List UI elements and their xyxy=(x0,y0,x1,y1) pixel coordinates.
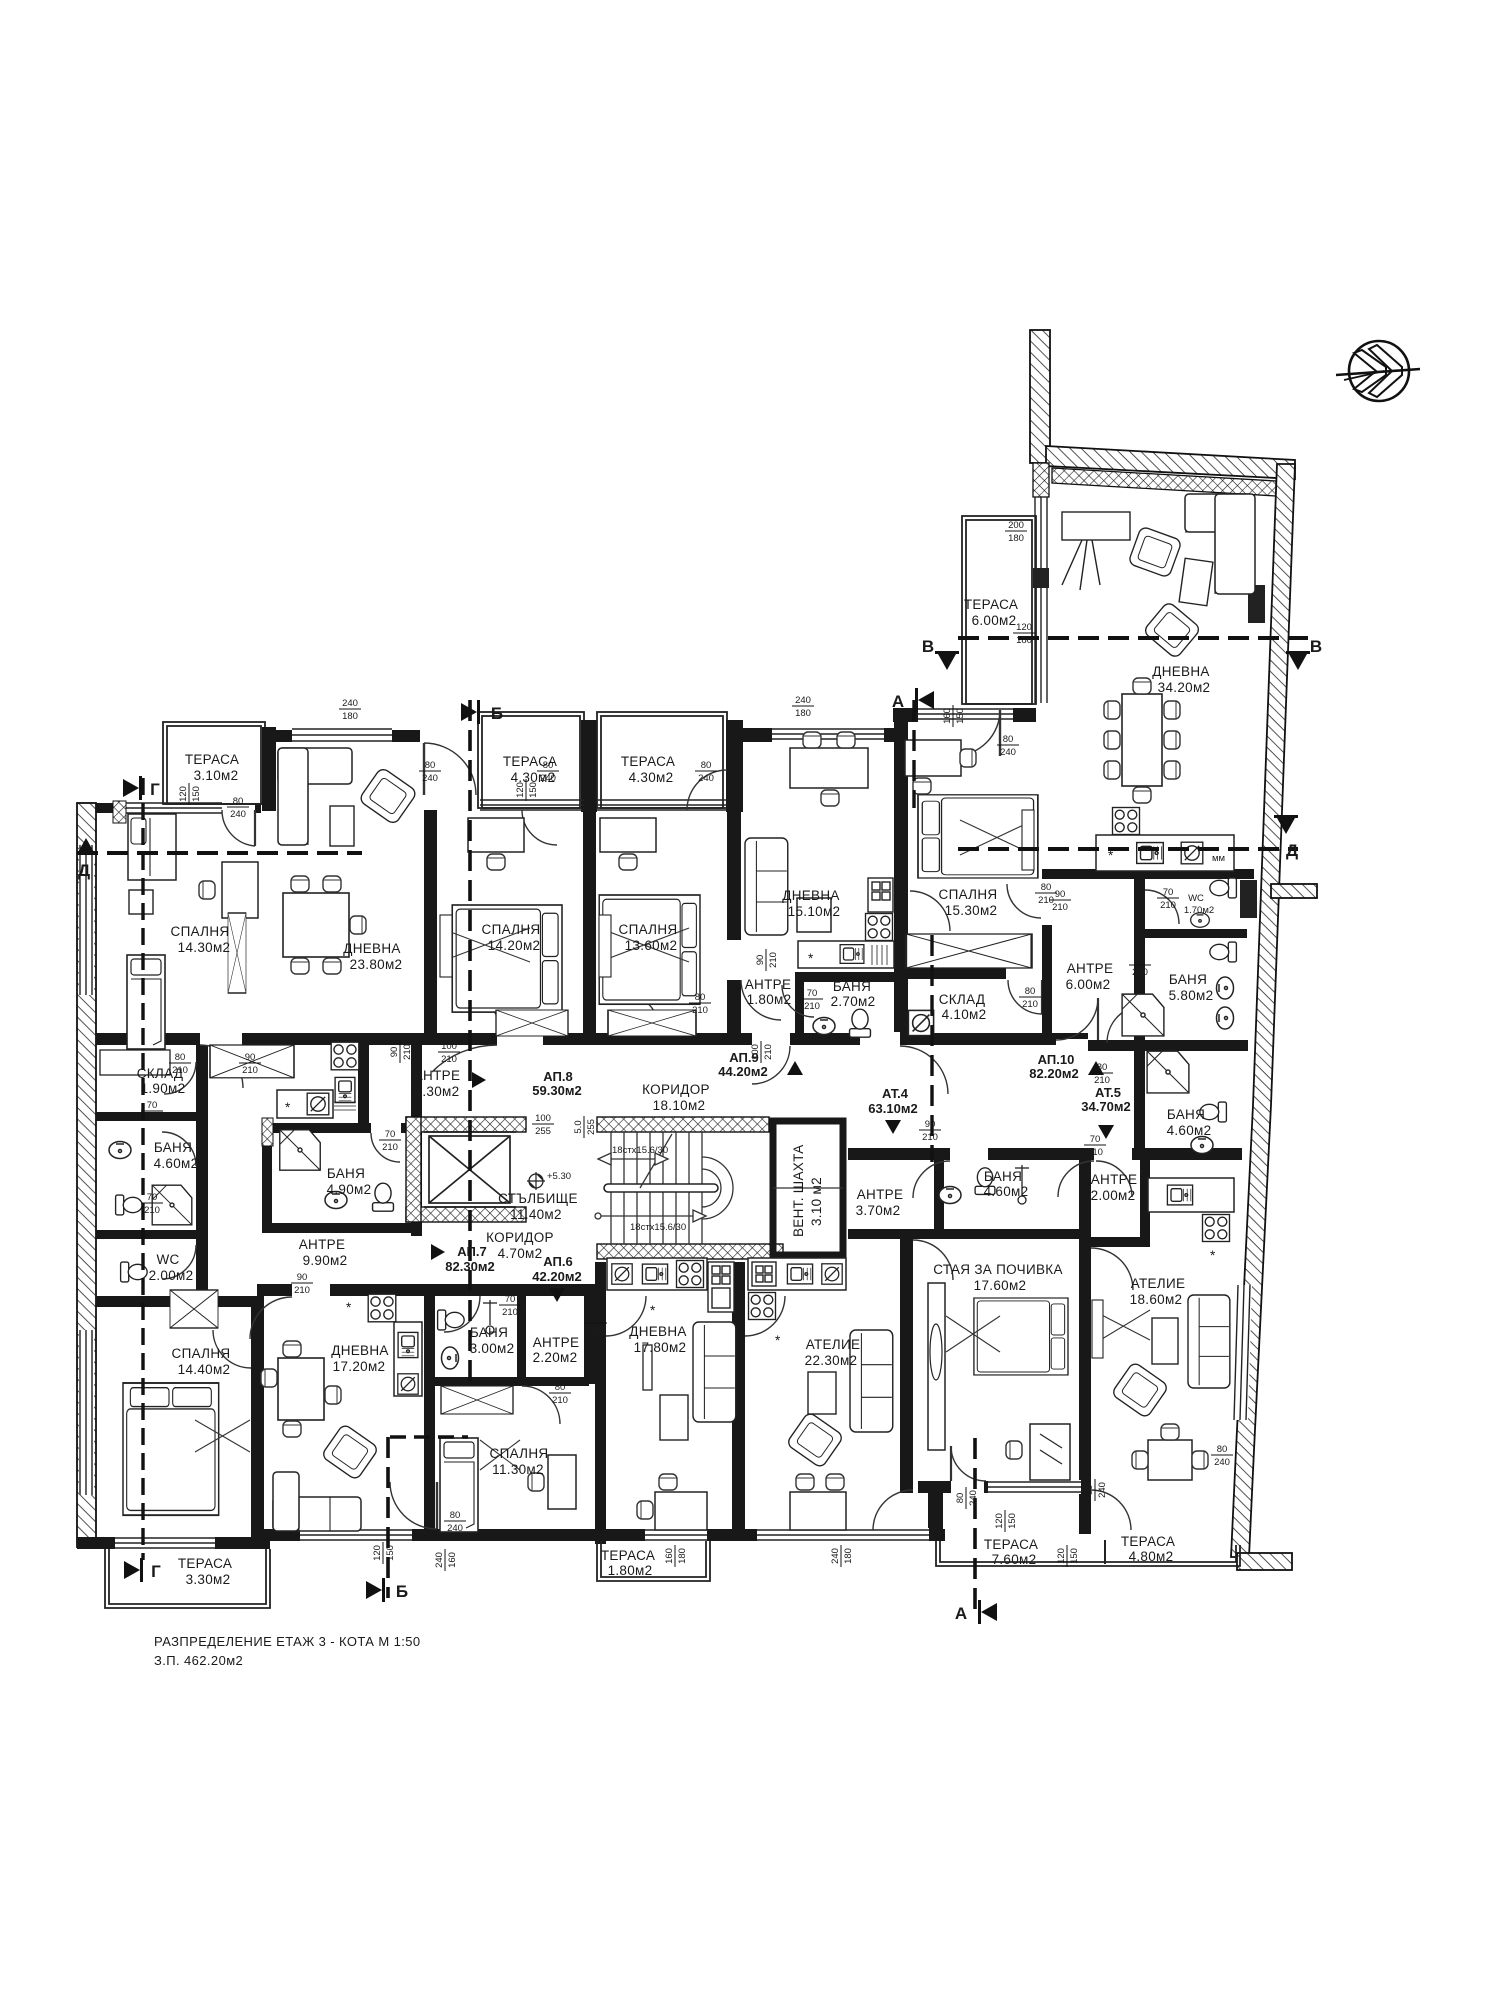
svg-text:120: 120 xyxy=(1016,622,1032,633)
svg-text:11.40м2: 11.40м2 xyxy=(510,1207,562,1222)
svg-text:70: 70 xyxy=(807,988,818,999)
svg-text:ДНЕВНА: ДНЕВНА xyxy=(782,888,839,903)
svg-text:240: 240 xyxy=(968,1490,979,1506)
svg-text:9.90м2: 9.90м2 xyxy=(303,1253,348,1268)
svg-text:З.П. 462.20м2: З.П. 462.20м2 xyxy=(154,1653,243,1668)
svg-text:6.00м2: 6.00м2 xyxy=(972,613,1017,628)
svg-text:180: 180 xyxy=(1016,635,1032,646)
svg-text:210: 210 xyxy=(502,1307,518,1318)
svg-text:160: 160 xyxy=(447,1552,458,1568)
svg-text:255: 255 xyxy=(586,1119,597,1135)
svg-text:СПАЛНЯ: СПАЛНЯ xyxy=(490,1446,549,1461)
svg-text:БАНЯ: БАНЯ xyxy=(984,1169,1022,1184)
svg-text:7.60м2: 7.60м2 xyxy=(992,1552,1037,1567)
svg-text:СКЛАД: СКЛАД xyxy=(939,992,986,1007)
svg-text:70: 70 xyxy=(147,1192,158,1203)
svg-text:180: 180 xyxy=(843,1548,854,1564)
svg-text:200: 200 xyxy=(1008,520,1024,531)
svg-text:80: 80 xyxy=(1003,734,1014,745)
svg-text:240: 240 xyxy=(422,773,438,784)
svg-text:150: 150 xyxy=(1007,1513,1018,1529)
svg-text:150: 150 xyxy=(191,786,202,802)
svg-text:1.70м2: 1.70м2 xyxy=(1184,905,1214,916)
svg-text:240: 240 xyxy=(698,773,714,784)
svg-text:240: 240 xyxy=(1000,747,1016,758)
svg-text:4.90м2: 4.90м2 xyxy=(327,1182,372,1197)
svg-text:ТЕРАСА: ТЕРАСА xyxy=(984,1537,1038,1552)
svg-text:Б: Б xyxy=(396,1582,408,1601)
svg-text:БАНЯ: БАНЯ xyxy=(327,1166,365,1181)
svg-text:80: 80 xyxy=(450,1510,461,1521)
svg-text:ДНЕВНА: ДНЕВНА xyxy=(331,1343,388,1358)
svg-text:ТЕРАСА: ТЕРАСА xyxy=(503,754,557,769)
svg-text:6.00м2: 6.00м2 xyxy=(1066,977,1111,992)
svg-text:210: 210 xyxy=(768,952,779,968)
svg-text:210: 210 xyxy=(804,1001,820,1012)
svg-text:АНТРЕ: АНТРЕ xyxy=(414,1068,461,1083)
svg-text:80: 80 xyxy=(555,1382,566,1393)
svg-text:мм: мм xyxy=(1212,853,1225,864)
svg-text:Г: Г xyxy=(151,1562,161,1581)
svg-text:3.10м2: 3.10м2 xyxy=(194,768,239,783)
svg-text:СТЪЛБИЩЕ: СТЪЛБИЩЕ xyxy=(498,1191,578,1206)
svg-text:210: 210 xyxy=(692,1005,708,1016)
svg-text:210: 210 xyxy=(1022,999,1038,1010)
svg-text:4.60м2: 4.60м2 xyxy=(154,1156,199,1171)
svg-text:ТЕРАСА: ТЕРАСА xyxy=(601,1548,655,1563)
svg-text:4.30м2: 4.30м2 xyxy=(629,770,674,785)
svg-text:АНТРЕ: АНТРЕ xyxy=(1091,1172,1138,1187)
svg-text:44.20м2: 44.20м2 xyxy=(718,1064,767,1079)
svg-text:АТЕЛИЕ: АТЕЛИЕ xyxy=(806,1337,861,1352)
svg-text:210: 210 xyxy=(382,1142,398,1153)
svg-text:3.10 м2: 3.10 м2 xyxy=(809,1177,824,1226)
svg-text:1.80м2: 1.80м2 xyxy=(608,1563,653,1578)
svg-text:240: 240 xyxy=(1214,1457,1230,1468)
svg-text:22.30м2: 22.30м2 xyxy=(805,1353,858,1368)
svg-text:18стх15.6/30: 18стх15.6/30 xyxy=(630,1222,686,1233)
svg-text:42.20м2: 42.20м2 xyxy=(532,1269,581,1284)
svg-text:70: 70 xyxy=(1135,954,1146,965)
svg-text:СПАЛНЯ: СПАЛНЯ xyxy=(939,887,998,902)
svg-text:240: 240 xyxy=(795,695,811,706)
svg-text:18стх15.6/30: 18стх15.6/30 xyxy=(612,1145,668,1156)
svg-text:210: 210 xyxy=(402,1044,413,1060)
svg-text:ДНЕВНА: ДНЕВНА xyxy=(343,941,400,956)
svg-text:70: 70 xyxy=(385,1129,396,1140)
svg-text:А: А xyxy=(892,692,904,711)
svg-text:240: 240 xyxy=(230,809,246,820)
svg-text:82.20м2: 82.20м2 xyxy=(1029,1066,1078,1081)
svg-text:18.60м2: 18.60м2 xyxy=(1130,1292,1183,1307)
svg-text:150: 150 xyxy=(385,1545,396,1561)
svg-text:ТЕРАСА: ТЕРАСА xyxy=(1121,1534,1175,1549)
svg-text:БАНЯ: БАНЯ xyxy=(470,1325,508,1340)
svg-text:5.80м2: 5.80м2 xyxy=(1169,988,1214,1003)
svg-text:БАНЯ: БАНЯ xyxy=(1169,972,1207,987)
svg-text:4.60м2: 4.60м2 xyxy=(984,1184,1029,1199)
svg-text:180: 180 xyxy=(795,708,811,719)
svg-text:БАНЯ: БАНЯ xyxy=(833,979,871,994)
svg-text:WC: WC xyxy=(156,1252,179,1267)
svg-text:100: 100 xyxy=(535,1113,551,1124)
svg-text:210: 210 xyxy=(1087,1147,1103,1158)
svg-text:3.00м2: 3.00м2 xyxy=(470,1341,515,1356)
svg-text:ДНЕВНА: ДНЕВНА xyxy=(1152,664,1209,679)
svg-text:120: 120 xyxy=(994,1513,1005,1529)
svg-text:90: 90 xyxy=(925,1119,936,1130)
svg-text:АНТРЕ: АНТРЕ xyxy=(857,1187,904,1202)
svg-text:15.10м2: 15.10м2 xyxy=(788,904,841,919)
svg-text:Д: Д xyxy=(78,861,90,880)
svg-text:240: 240 xyxy=(1097,1482,1108,1498)
svg-text:70: 70 xyxy=(1090,1134,1101,1145)
svg-text:2.00м2: 2.00м2 xyxy=(1091,1188,1136,1203)
svg-text:34.70м2: 34.70м2 xyxy=(1081,1099,1130,1114)
svg-text:1.80м2: 1.80м2 xyxy=(747,992,792,1007)
svg-text:34.20м2: 34.20м2 xyxy=(1158,680,1211,695)
svg-text:80: 80 xyxy=(425,760,436,771)
svg-text:210: 210 xyxy=(144,1113,160,1124)
svg-text:4.70м2: 4.70м2 xyxy=(498,1246,543,1261)
svg-text:Б: Б xyxy=(491,704,503,723)
svg-text:210: 210 xyxy=(294,1285,310,1296)
svg-text:240: 240 xyxy=(434,1552,445,1568)
svg-text:*: * xyxy=(650,1303,656,1318)
svg-text:+5.30: +5.30 xyxy=(547,1171,571,1182)
svg-text:*: * xyxy=(285,1100,291,1115)
svg-text:КОРИДОР: КОРИДОР xyxy=(642,1082,710,1097)
svg-text:17.20м2: 17.20м2 xyxy=(333,1359,386,1374)
svg-text:120: 120 xyxy=(372,1545,383,1561)
svg-text:180: 180 xyxy=(1008,533,1024,544)
svg-text:4.30м2: 4.30м2 xyxy=(511,770,556,785)
svg-text:80: 80 xyxy=(175,1052,186,1063)
svg-text:80: 80 xyxy=(701,760,712,771)
svg-text:150: 150 xyxy=(1069,1548,1080,1564)
svg-text:ТЕРАСА: ТЕРАСА xyxy=(964,597,1018,612)
svg-text:4.10м2: 4.10м2 xyxy=(942,1007,987,1022)
svg-text:240: 240 xyxy=(342,698,358,709)
svg-text:210: 210 xyxy=(144,1205,160,1216)
svg-text:23.80м2: 23.80м2 xyxy=(350,957,403,972)
svg-text:АТ.4: АТ.4 xyxy=(882,1086,909,1101)
svg-text:13.60м2: 13.60м2 xyxy=(625,938,678,953)
svg-text:80: 80 xyxy=(695,992,706,1003)
svg-text:4.30м2: 4.30м2 xyxy=(415,1084,460,1099)
svg-text:100: 100 xyxy=(441,1041,457,1052)
svg-text:2.20м2: 2.20м2 xyxy=(533,1350,578,1365)
svg-text:СКЛАД: СКЛАД xyxy=(137,1066,184,1081)
svg-text:Г: Г xyxy=(150,780,160,799)
svg-text:АП.8: АП.8 xyxy=(543,1069,572,1084)
svg-text:210: 210 xyxy=(1052,902,1068,913)
svg-text:59.30м2: 59.30м2 xyxy=(532,1083,581,1098)
svg-text:17.60м2: 17.60м2 xyxy=(974,1278,1027,1293)
svg-text:70: 70 xyxy=(147,1100,158,1111)
svg-text:4.80м2: 4.80м2 xyxy=(1129,1549,1174,1564)
svg-text:240: 240 xyxy=(447,1523,463,1534)
svg-text:90: 90 xyxy=(1055,889,1066,900)
svg-text:*: * xyxy=(775,1333,781,1348)
svg-text:80: 80 xyxy=(1217,1444,1228,1455)
svg-text:90: 90 xyxy=(245,1052,256,1063)
svg-text:150: 150 xyxy=(955,708,966,724)
svg-text:180: 180 xyxy=(342,711,358,722)
svg-text:WC: WC xyxy=(1188,893,1204,904)
svg-text:210: 210 xyxy=(922,1132,938,1143)
svg-text:90: 90 xyxy=(297,1272,308,1283)
svg-text:БАНЯ: БАНЯ xyxy=(154,1140,192,1155)
svg-text:80: 80 xyxy=(233,796,244,807)
svg-text:3.70м2: 3.70м2 xyxy=(856,1203,901,1218)
svg-text:90: 90 xyxy=(591,1312,602,1323)
svg-text:*: * xyxy=(346,1300,352,1315)
svg-text:180: 180 xyxy=(677,1548,688,1564)
svg-text:80: 80 xyxy=(1041,882,1052,893)
svg-text:5.0: 5.0 xyxy=(573,1120,584,1133)
svg-text:80: 80 xyxy=(955,1493,966,1504)
svg-text:1.90м2: 1.90м2 xyxy=(141,1081,186,1096)
svg-text:АНТРЕ: АНТРЕ xyxy=(745,977,792,992)
svg-text:210: 210 xyxy=(1132,967,1148,978)
svg-text:ТЕРАСА: ТЕРАСА xyxy=(621,754,675,769)
svg-text:15.30м2: 15.30м2 xyxy=(945,903,998,918)
svg-text:17.80м2: 17.80м2 xyxy=(634,1340,687,1355)
svg-text:160: 160 xyxy=(942,708,953,724)
svg-text:90: 90 xyxy=(389,1047,400,1058)
svg-text:КОРИДОР: КОРИДОР xyxy=(486,1230,554,1245)
svg-text:В: В xyxy=(1310,637,1322,656)
svg-text:90: 90 xyxy=(755,955,766,966)
svg-text:70: 70 xyxy=(505,1294,516,1305)
svg-text:Д: Д xyxy=(1286,841,1298,860)
svg-text:ДНЕВНА: ДНЕВНА xyxy=(629,1324,686,1339)
svg-text:СПАЛНЯ: СПАЛНЯ xyxy=(619,922,678,937)
svg-text:АНТРЕ: АНТРЕ xyxy=(533,1335,580,1350)
svg-text:2.00м2: 2.00м2 xyxy=(149,1268,194,1283)
svg-text:120: 120 xyxy=(1056,1548,1067,1564)
svg-text:*: * xyxy=(1210,1248,1216,1263)
svg-text:210: 210 xyxy=(763,1044,774,1060)
svg-text:3.30м2: 3.30м2 xyxy=(186,1572,231,1587)
svg-text:255: 255 xyxy=(535,1126,551,1137)
svg-text:4.60м2: 4.60м2 xyxy=(1167,1123,1212,1138)
svg-text:АП.10: АП.10 xyxy=(1038,1052,1075,1067)
svg-text:*: * xyxy=(808,951,814,966)
svg-text:210: 210 xyxy=(1160,900,1176,911)
svg-text:ТЕРАСА: ТЕРАСА xyxy=(185,752,239,767)
svg-text:ВЕНТ. ШАХТА: ВЕНТ. ШАХТА xyxy=(791,1145,806,1238)
svg-text:АП.9: АП.9 xyxy=(729,1050,758,1065)
svg-text:120: 120 xyxy=(178,786,189,802)
svg-text:14.30м2: 14.30м2 xyxy=(178,940,231,955)
svg-text:18.10м2: 18.10м2 xyxy=(653,1098,706,1113)
svg-text:АТ.5: АТ.5 xyxy=(1095,1085,1121,1100)
svg-text:АНТРЕ: АНТРЕ xyxy=(1067,961,1114,976)
svg-text:240: 240 xyxy=(830,1548,841,1564)
svg-text:АНТРЕ: АНТРЕ xyxy=(299,1237,346,1252)
svg-text:210: 210 xyxy=(242,1065,258,1076)
svg-text:11.30м2: 11.30м2 xyxy=(492,1462,544,1477)
svg-text:210: 210 xyxy=(552,1395,568,1406)
svg-text:СПАЛНЯ: СПАЛНЯ xyxy=(171,924,230,939)
svg-text:СПАЛНЯ: СПАЛНЯ xyxy=(172,1346,231,1361)
svg-text:ТЕРАСА: ТЕРАСА xyxy=(178,1556,232,1571)
svg-text:210: 210 xyxy=(441,1054,457,1065)
svg-text:А: А xyxy=(955,1604,967,1623)
svg-text:70: 70 xyxy=(1163,887,1174,898)
svg-text:82.30м2: 82.30м2 xyxy=(445,1259,494,1274)
svg-text:160: 160 xyxy=(664,1548,675,1564)
svg-text:РАЗПРЕДЕЛЕНИЕ ЕТАЖ 3 - КОТА: РАЗПРЕДЕЛЕНИЕ ЕТАЖ 3 - КОТА М 1:50 xyxy=(154,1634,420,1649)
svg-text:14.40м2: 14.40м2 xyxy=(178,1362,231,1377)
svg-text:СТАЯ ЗА ПОЧИВКА: СТАЯ ЗА ПОЧИВКА xyxy=(933,1262,1063,1277)
svg-text:СПАЛНЯ: СПАЛНЯ xyxy=(482,922,541,937)
svg-text:АП.6: АП.6 xyxy=(543,1254,572,1269)
svg-text:80: 80 xyxy=(1025,986,1036,997)
svg-text:14.20м2: 14.20м2 xyxy=(488,938,541,953)
svg-text:АП.7: АП.7 xyxy=(457,1244,486,1259)
svg-text:В: В xyxy=(922,637,934,656)
svg-text:АТЕЛИЕ: АТЕЛИЕ xyxy=(1131,1276,1186,1291)
svg-text:2.70м2: 2.70м2 xyxy=(831,994,876,1009)
svg-text:63.10м2: 63.10м2 xyxy=(868,1101,917,1116)
svg-text:80: 80 xyxy=(1084,1485,1095,1496)
svg-text:210: 210 xyxy=(588,1325,604,1336)
svg-text:БАНЯ: БАНЯ xyxy=(1167,1107,1205,1122)
